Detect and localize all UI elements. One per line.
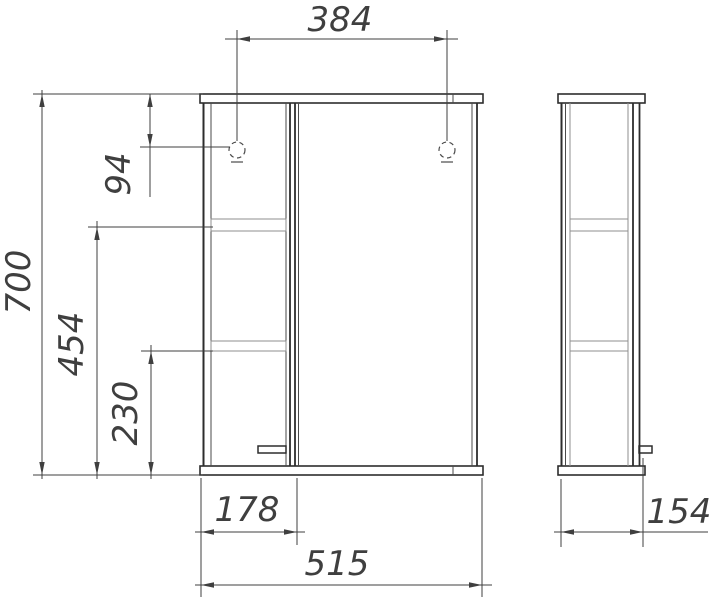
hanger-mount-icon-left [229,142,245,162]
arrowhead-icon [94,462,99,475]
hanger-circle [229,142,245,158]
front-top-panel [200,94,483,103]
arrowhead-icon [39,462,44,475]
arrowhead-icon [469,582,482,587]
hanger-circle [439,142,455,158]
dimension-hanger-drop: 94 [99,94,230,197]
side-bottom-panel [558,466,645,475]
front-door-handle [258,446,286,453]
arrowhead-icon [94,227,99,240]
arrowhead-icon [630,529,643,534]
dimension-value: 94 [99,152,139,195]
dimension-value: 154 [647,492,710,532]
dimension-value: 700 [0,250,39,315]
front-upper-shelf [211,219,286,231]
arrowhead-icon [237,36,250,41]
hanger-mount-icon-right [439,142,455,162]
arrowhead-icon [148,351,153,364]
arrowhead-icon [201,529,214,534]
dimension-value: 454 [52,312,92,377]
dimension-lower-shelf-height: 230 [106,345,213,479]
arrowhead-icon [39,94,44,107]
technical-drawing-page: 384 700 94 454 230 1 [0,0,710,600]
side-lower-shelf [570,341,628,351]
front-bottom-panel [200,466,483,475]
arrowhead-icon [434,36,447,41]
side-door-handle [639,446,652,453]
dimension-overall-height: 700 [0,90,203,479]
dimension-value: 384 [308,0,373,40]
cabinet-drawing: 384 700 94 454 230 1 [0,0,710,600]
dimension-depth: 154 [554,458,710,547]
front-view [200,94,483,475]
dimension-value: 515 [305,544,370,584]
side-view [558,94,652,475]
arrowhead-icon [561,529,574,534]
dimension-value: 178 [215,490,280,530]
arrowhead-icon [284,529,297,534]
arrowhead-icon [201,582,214,587]
side-upper-shelf [570,219,628,231]
dimension-value: 230 [106,381,146,446]
arrowhead-icon [147,134,152,147]
arrowhead-icon [148,462,153,475]
dimension-shelf-section-width: 178 [195,478,305,597]
side-top-panel [558,94,645,103]
dimension-hanger-spacing: 384 [225,0,458,141]
front-lower-shelf [211,341,286,351]
arrowhead-icon [147,94,152,107]
